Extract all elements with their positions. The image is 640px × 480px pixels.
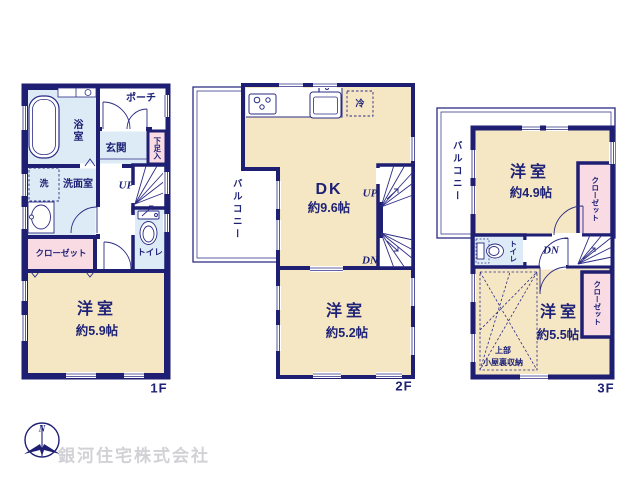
label-3f-bedroom1-size: 約4.9帖 (510, 187, 552, 200)
label-3f-floor: 3F (597, 382, 614, 395)
label-1f-bathroom: 浴室 (71, 119, 81, 143)
floorplan-drawing (0, 0, 640, 480)
label-3f-balcony: バルコニー (451, 141, 461, 204)
label-1f-floor: 1F (150, 382, 167, 395)
label-1f-stairs-up: UP (119, 181, 134, 192)
label-3f-bedroom2: 洋室 (540, 305, 580, 321)
label-1f-shoe-cabinet: 下足入 (153, 137, 161, 160)
label-1f-washroom: 洗面室 (63, 180, 93, 190)
2f-stair-divider (378, 202, 383, 238)
floor-3f-plan (437, 108, 615, 380)
floorplan-canvas: ポーチ 浴室 玄関 下足入 洗 洗面室 UP トイレ クローゼット 洋室 約5.… (0, 0, 640, 480)
bathtub-icon (29, 96, 59, 158)
label-1f-closet: クローゼット (35, 249, 86, 258)
label-2f-refrigerator: 冷 (355, 100, 364, 109)
label-1f-entrance: 玄関 (106, 143, 127, 154)
label-1f-bedroom-size: 約5.9帖 (76, 325, 118, 338)
label-1f-porch: ポーチ (126, 94, 156, 104)
2f-sliding-door (310, 266, 343, 272)
label-3f-attic-line2: 小屋裏収納 (483, 359, 523, 367)
compass-north-label: N (39, 425, 46, 434)
label-3f-closet-upper: クローゼット (591, 177, 599, 222)
bath-counter-icon (58, 88, 96, 97)
label-2f-bedroom-size: 約5.2帖 (326, 327, 368, 340)
toilet-icon-1f (138, 211, 159, 245)
label-2f-dk-size: 約9.6帖 (308, 202, 350, 215)
2f-stairwell (378, 165, 413, 268)
label-2f-balcony: バルコニー (231, 179, 241, 242)
label-3f-bedroom2-size: 約5.5帖 (537, 329, 579, 342)
label-3f-bedroom1: 洋室 (510, 165, 550, 181)
label-2f-dk: DK (315, 182, 342, 198)
2f-stair-entry-opening (376, 168, 380, 184)
2f-bedroom (278, 268, 413, 377)
label-3f-attic-line1: 上部 (495, 347, 511, 355)
label-1f-washer: 洗 (39, 180, 48, 189)
label-3f-closet-lower: クローゼット (593, 281, 601, 326)
stove-icon (249, 94, 276, 114)
label-2f-stairs-down: DN (362, 256, 378, 267)
label-2f-bedroom: 洋室 (326, 304, 366, 320)
label-2f-floor: 2F (395, 380, 412, 393)
label-3f-stairs-down: DN (543, 246, 559, 257)
label-3f-toilet: トイレ (509, 240, 517, 263)
vanity-sink-icon (28, 202, 54, 233)
label-1f-toilet: トイレ (137, 248, 163, 257)
company-name: 銀河住宅株式会社 (58, 448, 210, 465)
label-1f-bedroom: 洋室 (77, 302, 117, 318)
label-2f-stairs-up: UP (363, 189, 378, 200)
floor-2f-plan (193, 82, 416, 378)
